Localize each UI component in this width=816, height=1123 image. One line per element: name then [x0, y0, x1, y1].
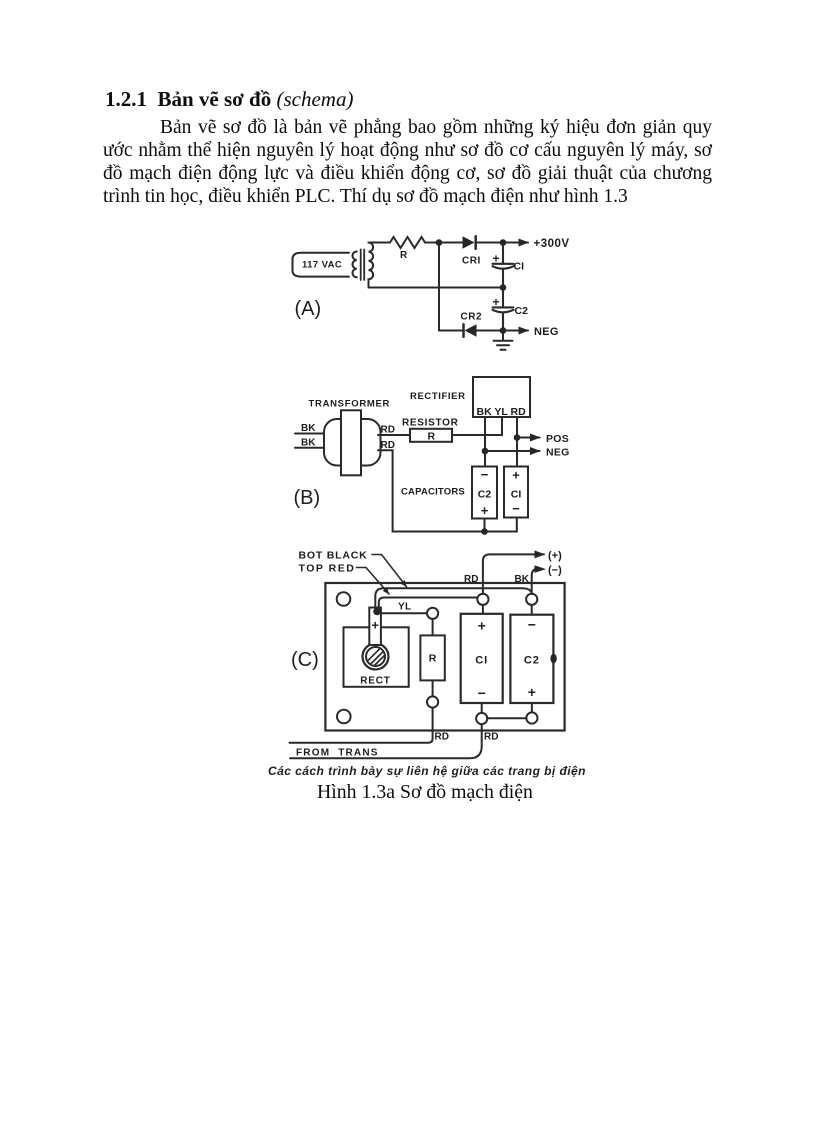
- svg-text:(B): (B): [294, 487, 321, 509]
- svg-text:(C): (C): [291, 649, 319, 671]
- svg-text:+: +: [371, 618, 379, 633]
- svg-text:RECTIFIER: RECTIFIER: [410, 391, 466, 402]
- svg-text:BK: BK: [515, 574, 530, 585]
- svg-text:−: −: [528, 617, 536, 633]
- svg-text:+: +: [512, 468, 520, 483]
- svg-text:YL: YL: [398, 602, 411, 613]
- svg-text:BK YL RD: BK YL RD: [477, 406, 527, 418]
- svg-text:RESISTOR: RESISTOR: [402, 418, 459, 429]
- svg-text:CRI: CRI: [462, 256, 481, 267]
- svg-text:+: +: [481, 503, 489, 518]
- svg-text:RD: RD: [484, 732, 498, 743]
- svg-text:NEG: NEG: [546, 447, 570, 459]
- svg-text:+: +: [528, 684, 536, 700]
- svg-text:−: −: [512, 501, 520, 516]
- svg-text:R: R: [429, 653, 437, 665]
- svg-text:CI: CI: [511, 489, 522, 501]
- svg-text:C2: C2: [524, 655, 540, 667]
- svg-text:+: +: [493, 252, 500, 266]
- svg-text:+: +: [493, 295, 500, 309]
- svg-text:POS: POS: [546, 433, 569, 445]
- svg-text:BK: BK: [301, 423, 316, 434]
- svg-text:117 VAC: 117 VAC: [302, 260, 342, 271]
- svg-text:R: R: [400, 250, 408, 261]
- svg-text:NEG: NEG: [534, 326, 559, 338]
- svg-text:TRANSFORMER: TRANSFORMER: [309, 399, 391, 410]
- svg-text:FROM TRANS: FROM TRANS: [296, 748, 379, 759]
- svg-text:−: −: [481, 467, 489, 482]
- svg-text:R: R: [428, 430, 436, 442]
- svg-text:C2: C2: [515, 305, 529, 317]
- svg-text:RD: RD: [381, 425, 395, 436]
- svg-text:C2: C2: [478, 489, 492, 501]
- svg-text:CAPACITORS: CAPACITORS: [401, 487, 465, 498]
- svg-text:(+): (+): [548, 550, 562, 562]
- svg-text:BOT BLACK: BOT BLACK: [299, 550, 368, 562]
- svg-text:(A): (A): [295, 298, 322, 320]
- svg-text:+300V: +300V: [534, 238, 570, 250]
- svg-text:RECT: RECT: [360, 676, 390, 687]
- svg-text:(−): (−): [548, 565, 562, 577]
- svg-text:RD: RD: [464, 574, 478, 585]
- svg-text:TOP RED: TOP RED: [299, 563, 356, 575]
- svg-text:BK: BK: [301, 437, 316, 448]
- svg-text:RD: RD: [435, 732, 449, 743]
- svg-text:CI: CI: [514, 261, 525, 273]
- svg-text:−: −: [478, 685, 486, 701]
- svg-text:+: +: [478, 618, 486, 634]
- svg-text:CR2: CR2: [461, 312, 483, 323]
- svg-text:CI: CI: [475, 655, 488, 667]
